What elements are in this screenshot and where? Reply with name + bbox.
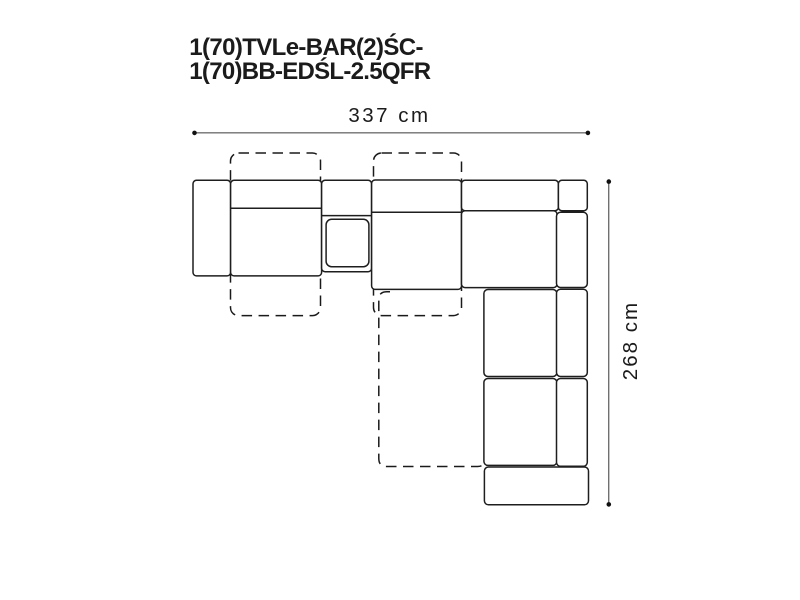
svg-text:268 cm: 268 cm [619, 301, 642, 380]
svg-text:337 cm: 337 cm [348, 104, 430, 127]
svg-text:1(70)TVLe-BAR(2)ŚC-: 1(70)TVLe-BAR(2)ŚC- [189, 33, 423, 61]
svg-text:1(70)BB-EDŚL-2.5QFR: 1(70)BB-EDŚL-2.5QFR [189, 57, 430, 85]
